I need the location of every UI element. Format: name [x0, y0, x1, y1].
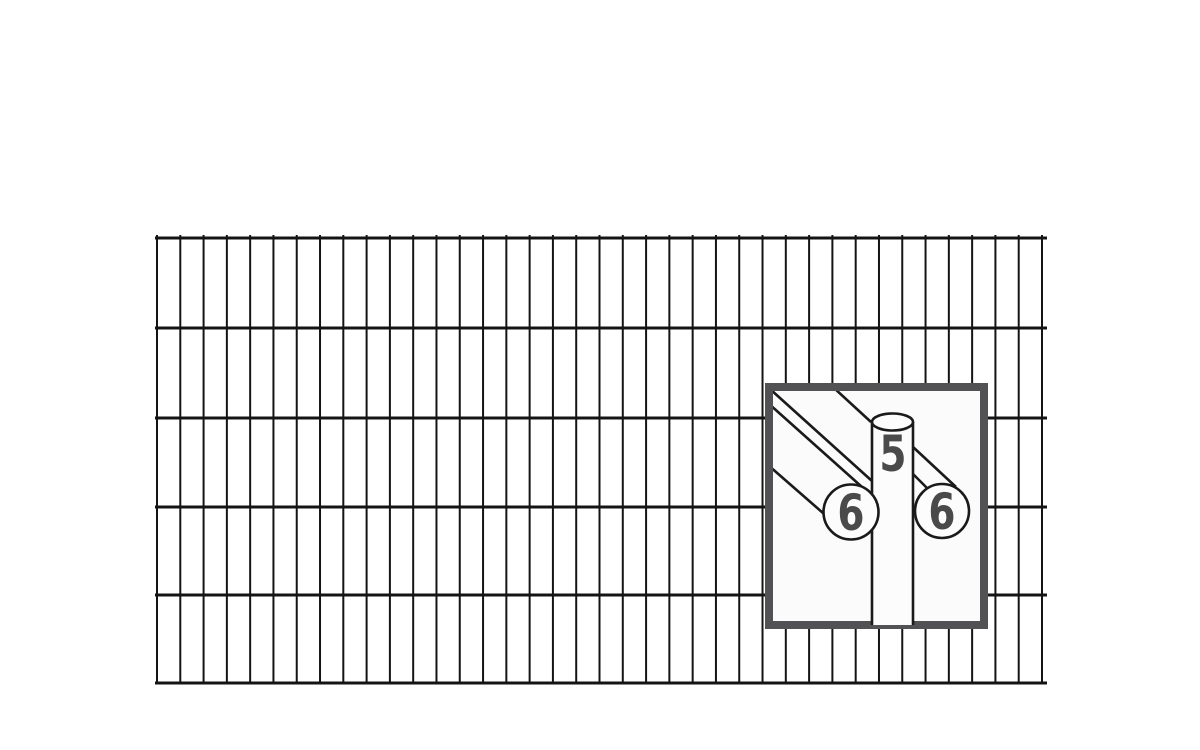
fence-product-illustration: 5 6 6 — [0, 0, 1200, 750]
fence-drawing: 5 6 6 — [0, 0, 1200, 750]
detail-callout: 5 6 6 — [768, 387, 984, 625]
front-wire-diameter-label: 6 — [837, 483, 864, 542]
vertical-wire-diameter-label: 5 — [879, 424, 906, 483]
back-wire-diameter-label: 6 — [928, 482, 955, 541]
